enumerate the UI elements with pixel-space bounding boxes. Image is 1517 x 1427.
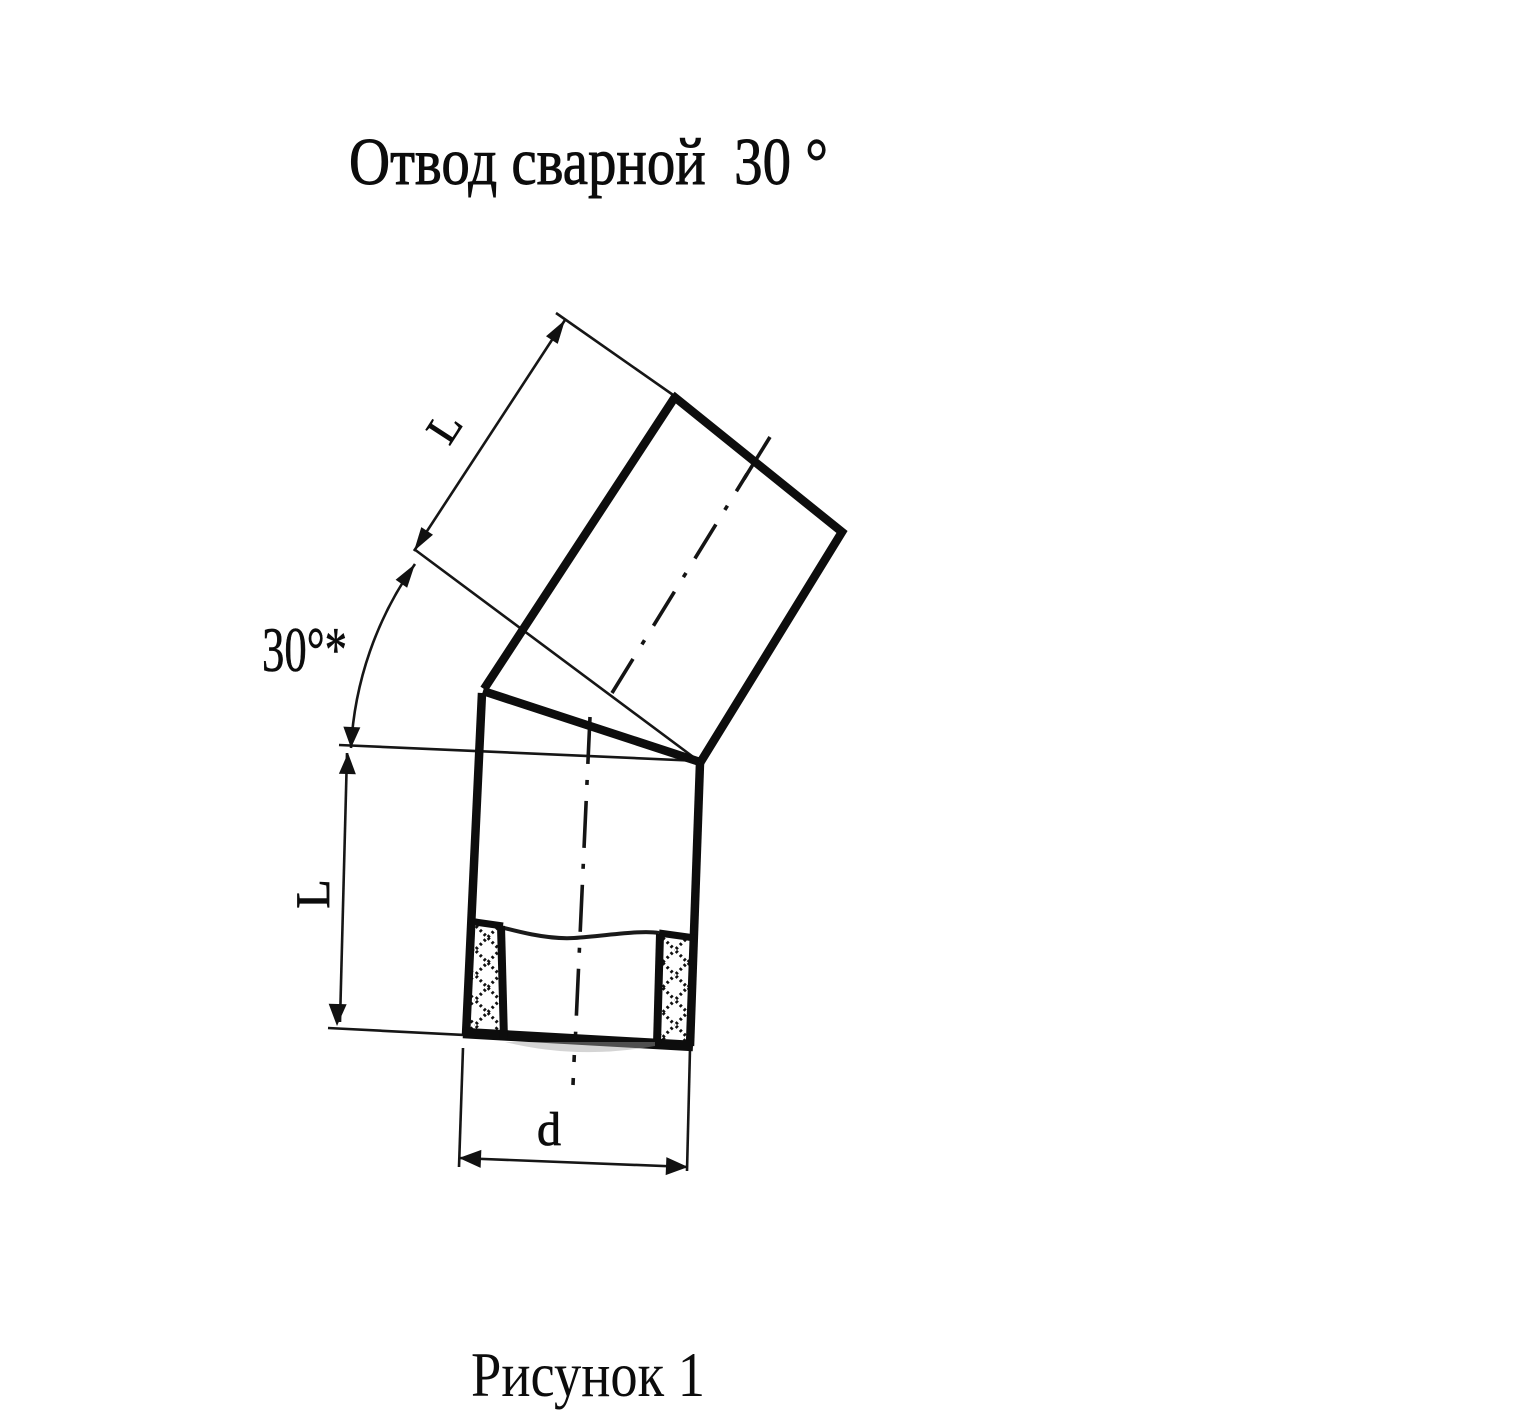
svg-text:L: L xyxy=(417,403,473,452)
svg-text:Рисунок 1: Рисунок 1 xyxy=(471,1339,705,1410)
svg-text:d: d xyxy=(537,1103,561,1156)
svg-text:L: L xyxy=(287,879,340,908)
svg-text:Отвод сварной 30 °: Отвод сварной 30 ° xyxy=(349,125,828,199)
svg-text:30°*: 30°* xyxy=(262,614,347,685)
